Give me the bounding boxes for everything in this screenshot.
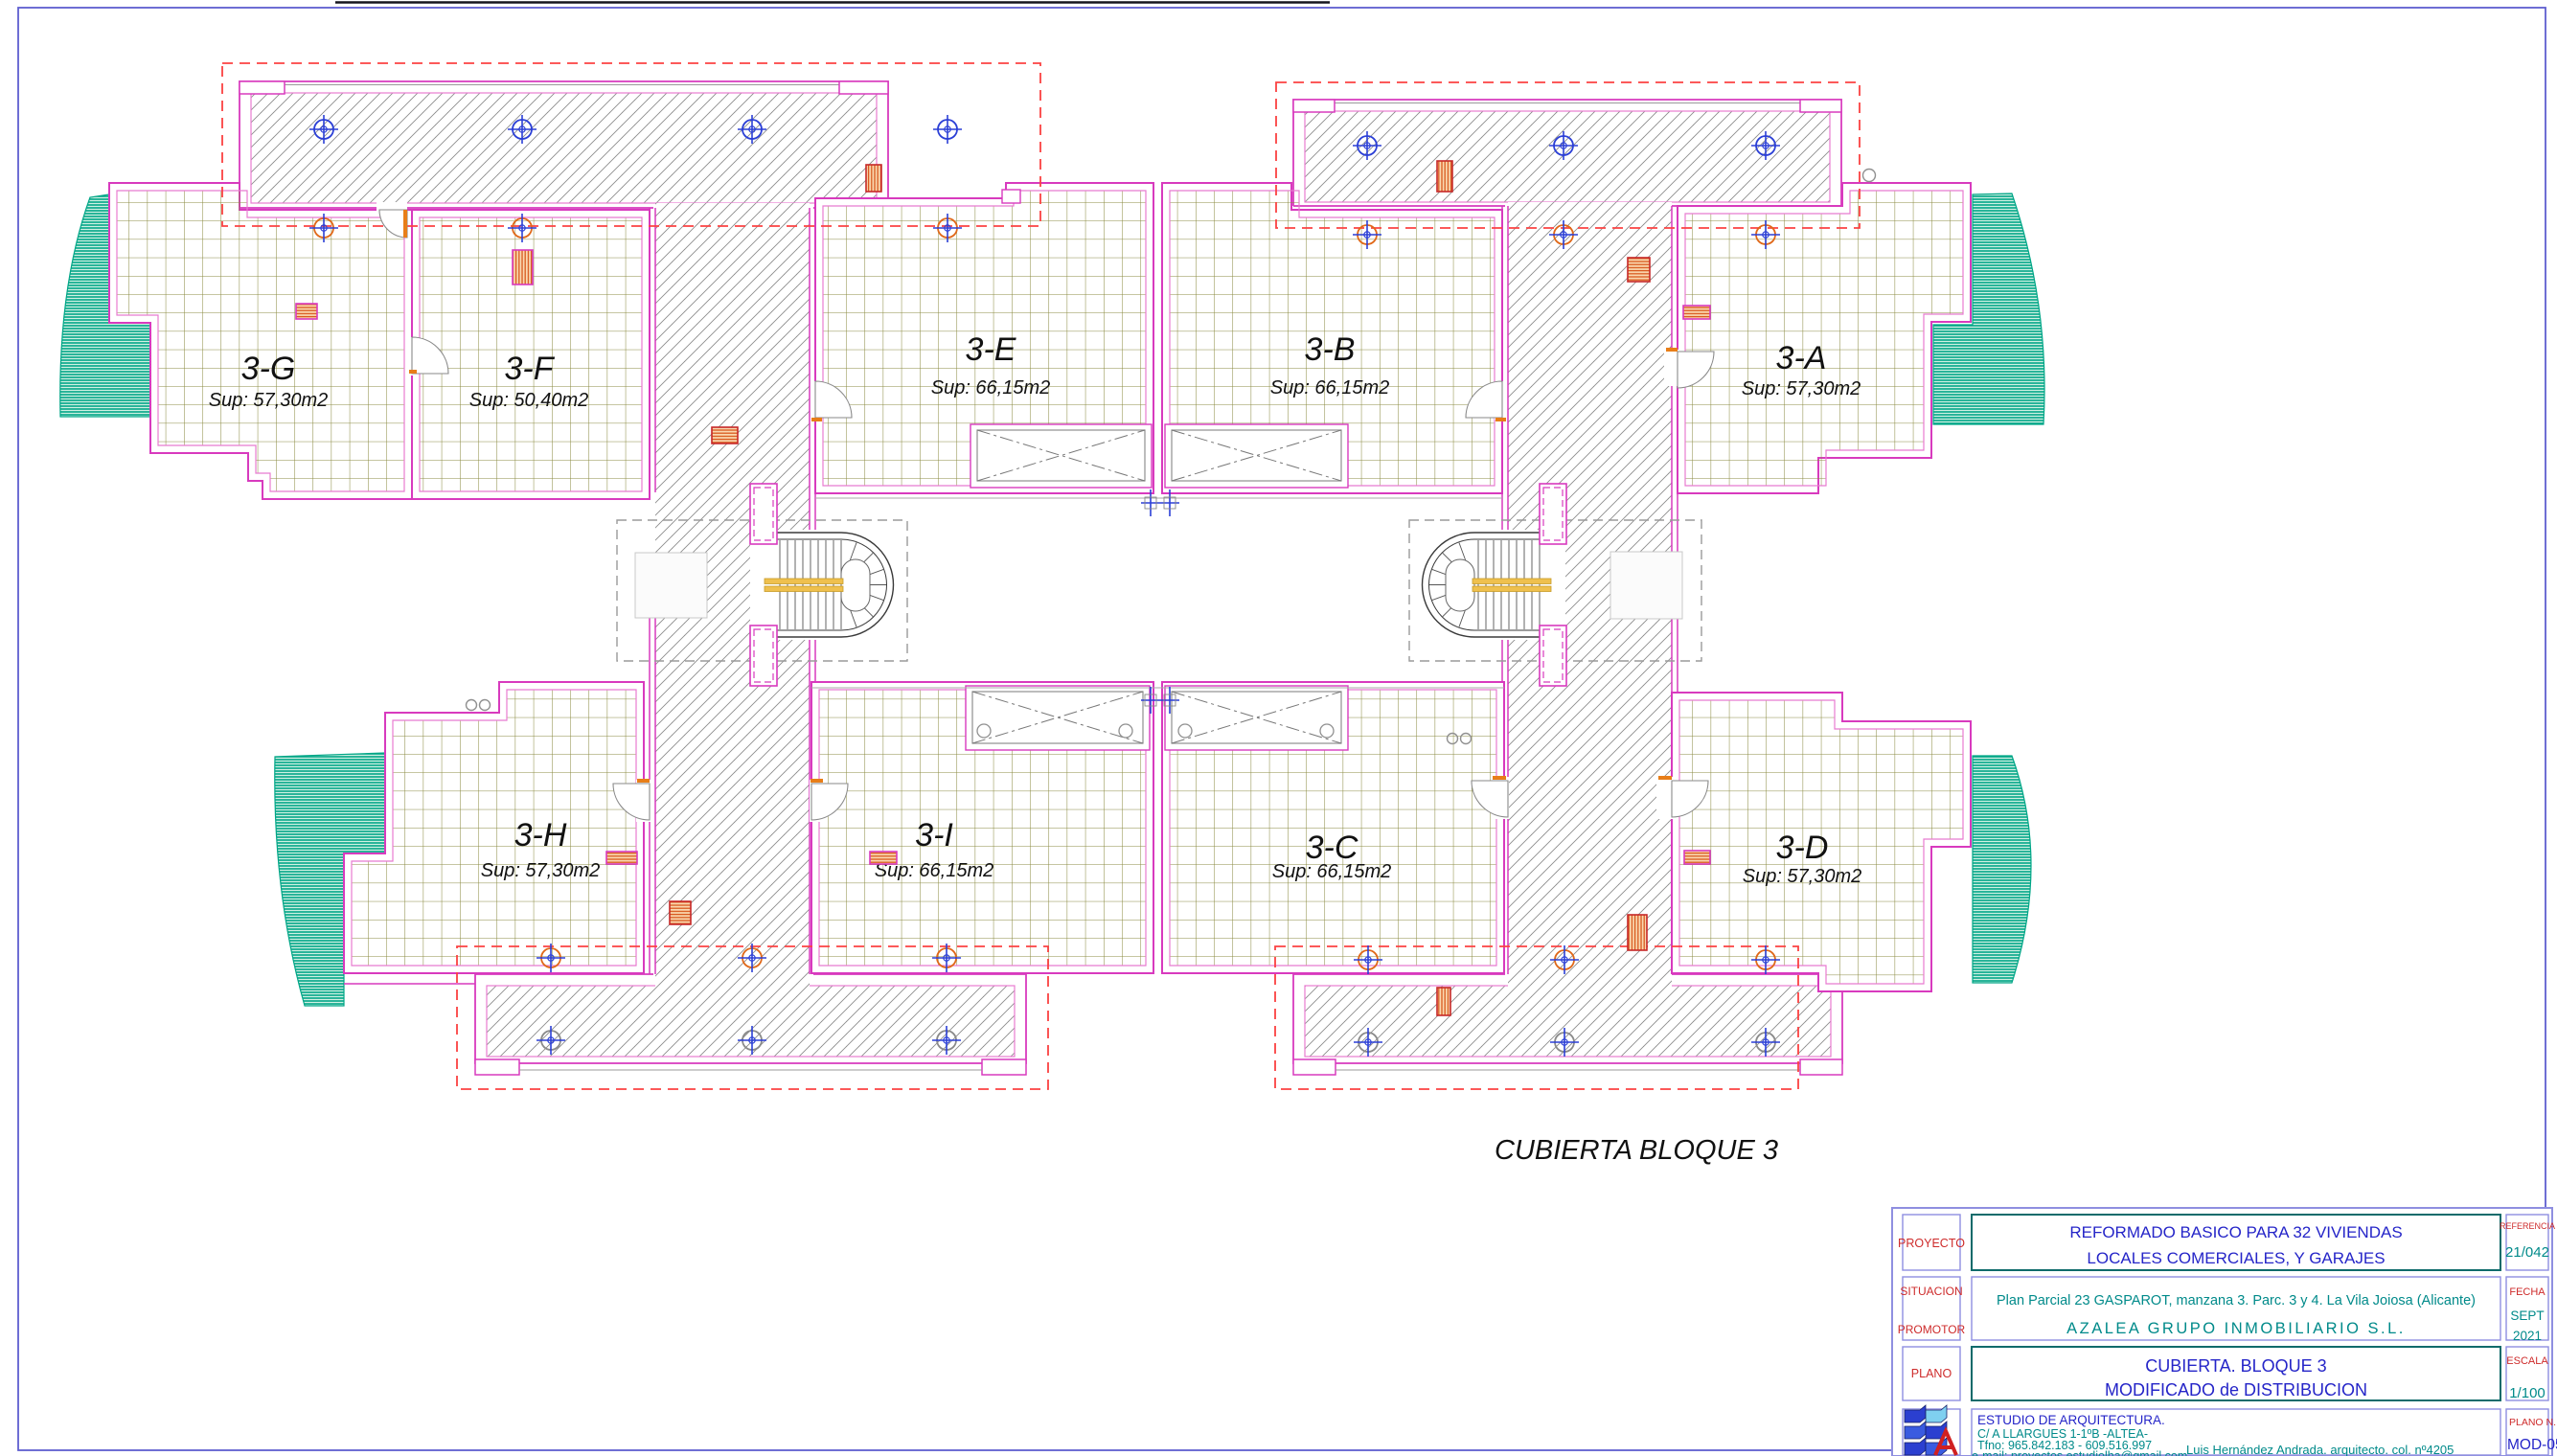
svg-text:Sup: 57,30m2: Sup: 57,30m2 [1742, 378, 1861, 399]
svg-text:3-A: 3-A [1776, 340, 1827, 376]
svg-text:3-E: 3-E [966, 331, 1016, 368]
svg-text:e-mail: proyectos.estudiolha@: e-mail: proyectos.estudiolha@gmail.com [1972, 1449, 2187, 1456]
svg-text:SITUACION: SITUACION [1900, 1285, 1962, 1298]
svg-text:Luis Hernández Andrada. arq: Luis Hernández Andrada. arquitecto. col.… [2186, 1443, 2454, 1456]
svg-text:Sup: 57,30m2: Sup: 57,30m2 [209, 390, 329, 411]
svg-text:3-B: 3-B [1305, 331, 1356, 368]
svg-text:MODIFICADO de DISTRIBUCION: MODIFICADO de DISTRIBUCION [2105, 1380, 2367, 1399]
svg-text:MOD-05: MOD-05 [2507, 1437, 2557, 1453]
svg-text:PROYECTO: PROYECTO [1898, 1237, 1965, 1250]
svg-text:REFORMADO BASICO PARA 32 VIVIE: REFORMADO BASICO PARA 32 VIVIENDAS [2069, 1223, 2402, 1241]
svg-text:Sup: 57,30m2: Sup: 57,30m2 [481, 860, 601, 881]
svg-text:21/042: 21/042 [2505, 1244, 2549, 1261]
svg-text:ESCALA: ESCALA [2506, 1355, 2548, 1367]
svg-text:FECHA: FECHA [2509, 1286, 2546, 1298]
svg-text:3-G: 3-G [241, 351, 296, 387]
svg-text:Sup: 66,15m2: Sup: 66,15m2 [931, 377, 1051, 398]
svg-text:Sup: 57,30m2: Sup: 57,30m2 [1743, 866, 1862, 887]
svg-text:3-I: 3-I [915, 817, 953, 853]
svg-text:SEPT: SEPT [2510, 1308, 2544, 1323]
svg-text:3-D: 3-D [1776, 830, 1829, 866]
svg-text:3-F: 3-F [505, 351, 556, 387]
svg-text:ESTUDIO DE ARQUITECTURA.: ESTUDIO DE ARQUITECTURA. [1977, 1413, 2165, 1427]
svg-text:PLANO N.: PLANO N. [2509, 1417, 2556, 1428]
svg-text:2021: 2021 [2513, 1329, 2542, 1343]
svg-text:Plan Parcial 23 GASPAROT,: Plan Parcial 23 GASPAROT, manzana 3. Par… [1997, 1293, 2476, 1308]
svg-text:Sup: 50,40m2: Sup: 50,40m2 [469, 390, 589, 411]
svg-text:1/100: 1/100 [2509, 1385, 2546, 1401]
svg-text:3-H: 3-H [514, 817, 567, 853]
svg-text:REFERENCIA: REFERENCIA [2500, 1221, 2555, 1231]
svg-text:PROMOTOR: PROMOTOR [1898, 1323, 1966, 1336]
svg-text:AZALEA GRUPO INMOBILIARIO S: AZALEA GRUPO INMOBILIARIO S.L. [2066, 1320, 2406, 1337]
svg-text:CUBIERTA BLOQUE 3: CUBIERTA BLOQUE 3 [1495, 1135, 1778, 1166]
svg-text:PLANO: PLANO [1911, 1367, 1952, 1380]
svg-text:LOCALES COMERCIALES, Y GARAJES: LOCALES COMERCIALES, Y GARAJES [2087, 1249, 2385, 1267]
svg-text:Sup: 66,15m2: Sup: 66,15m2 [1272, 861, 1392, 882]
svg-text:Sup: 66,15m2: Sup: 66,15m2 [1270, 377, 1390, 398]
svg-text:CUBIERTA. BLOQUE 3: CUBIERTA. BLOQUE 3 [2145, 1356, 2326, 1376]
